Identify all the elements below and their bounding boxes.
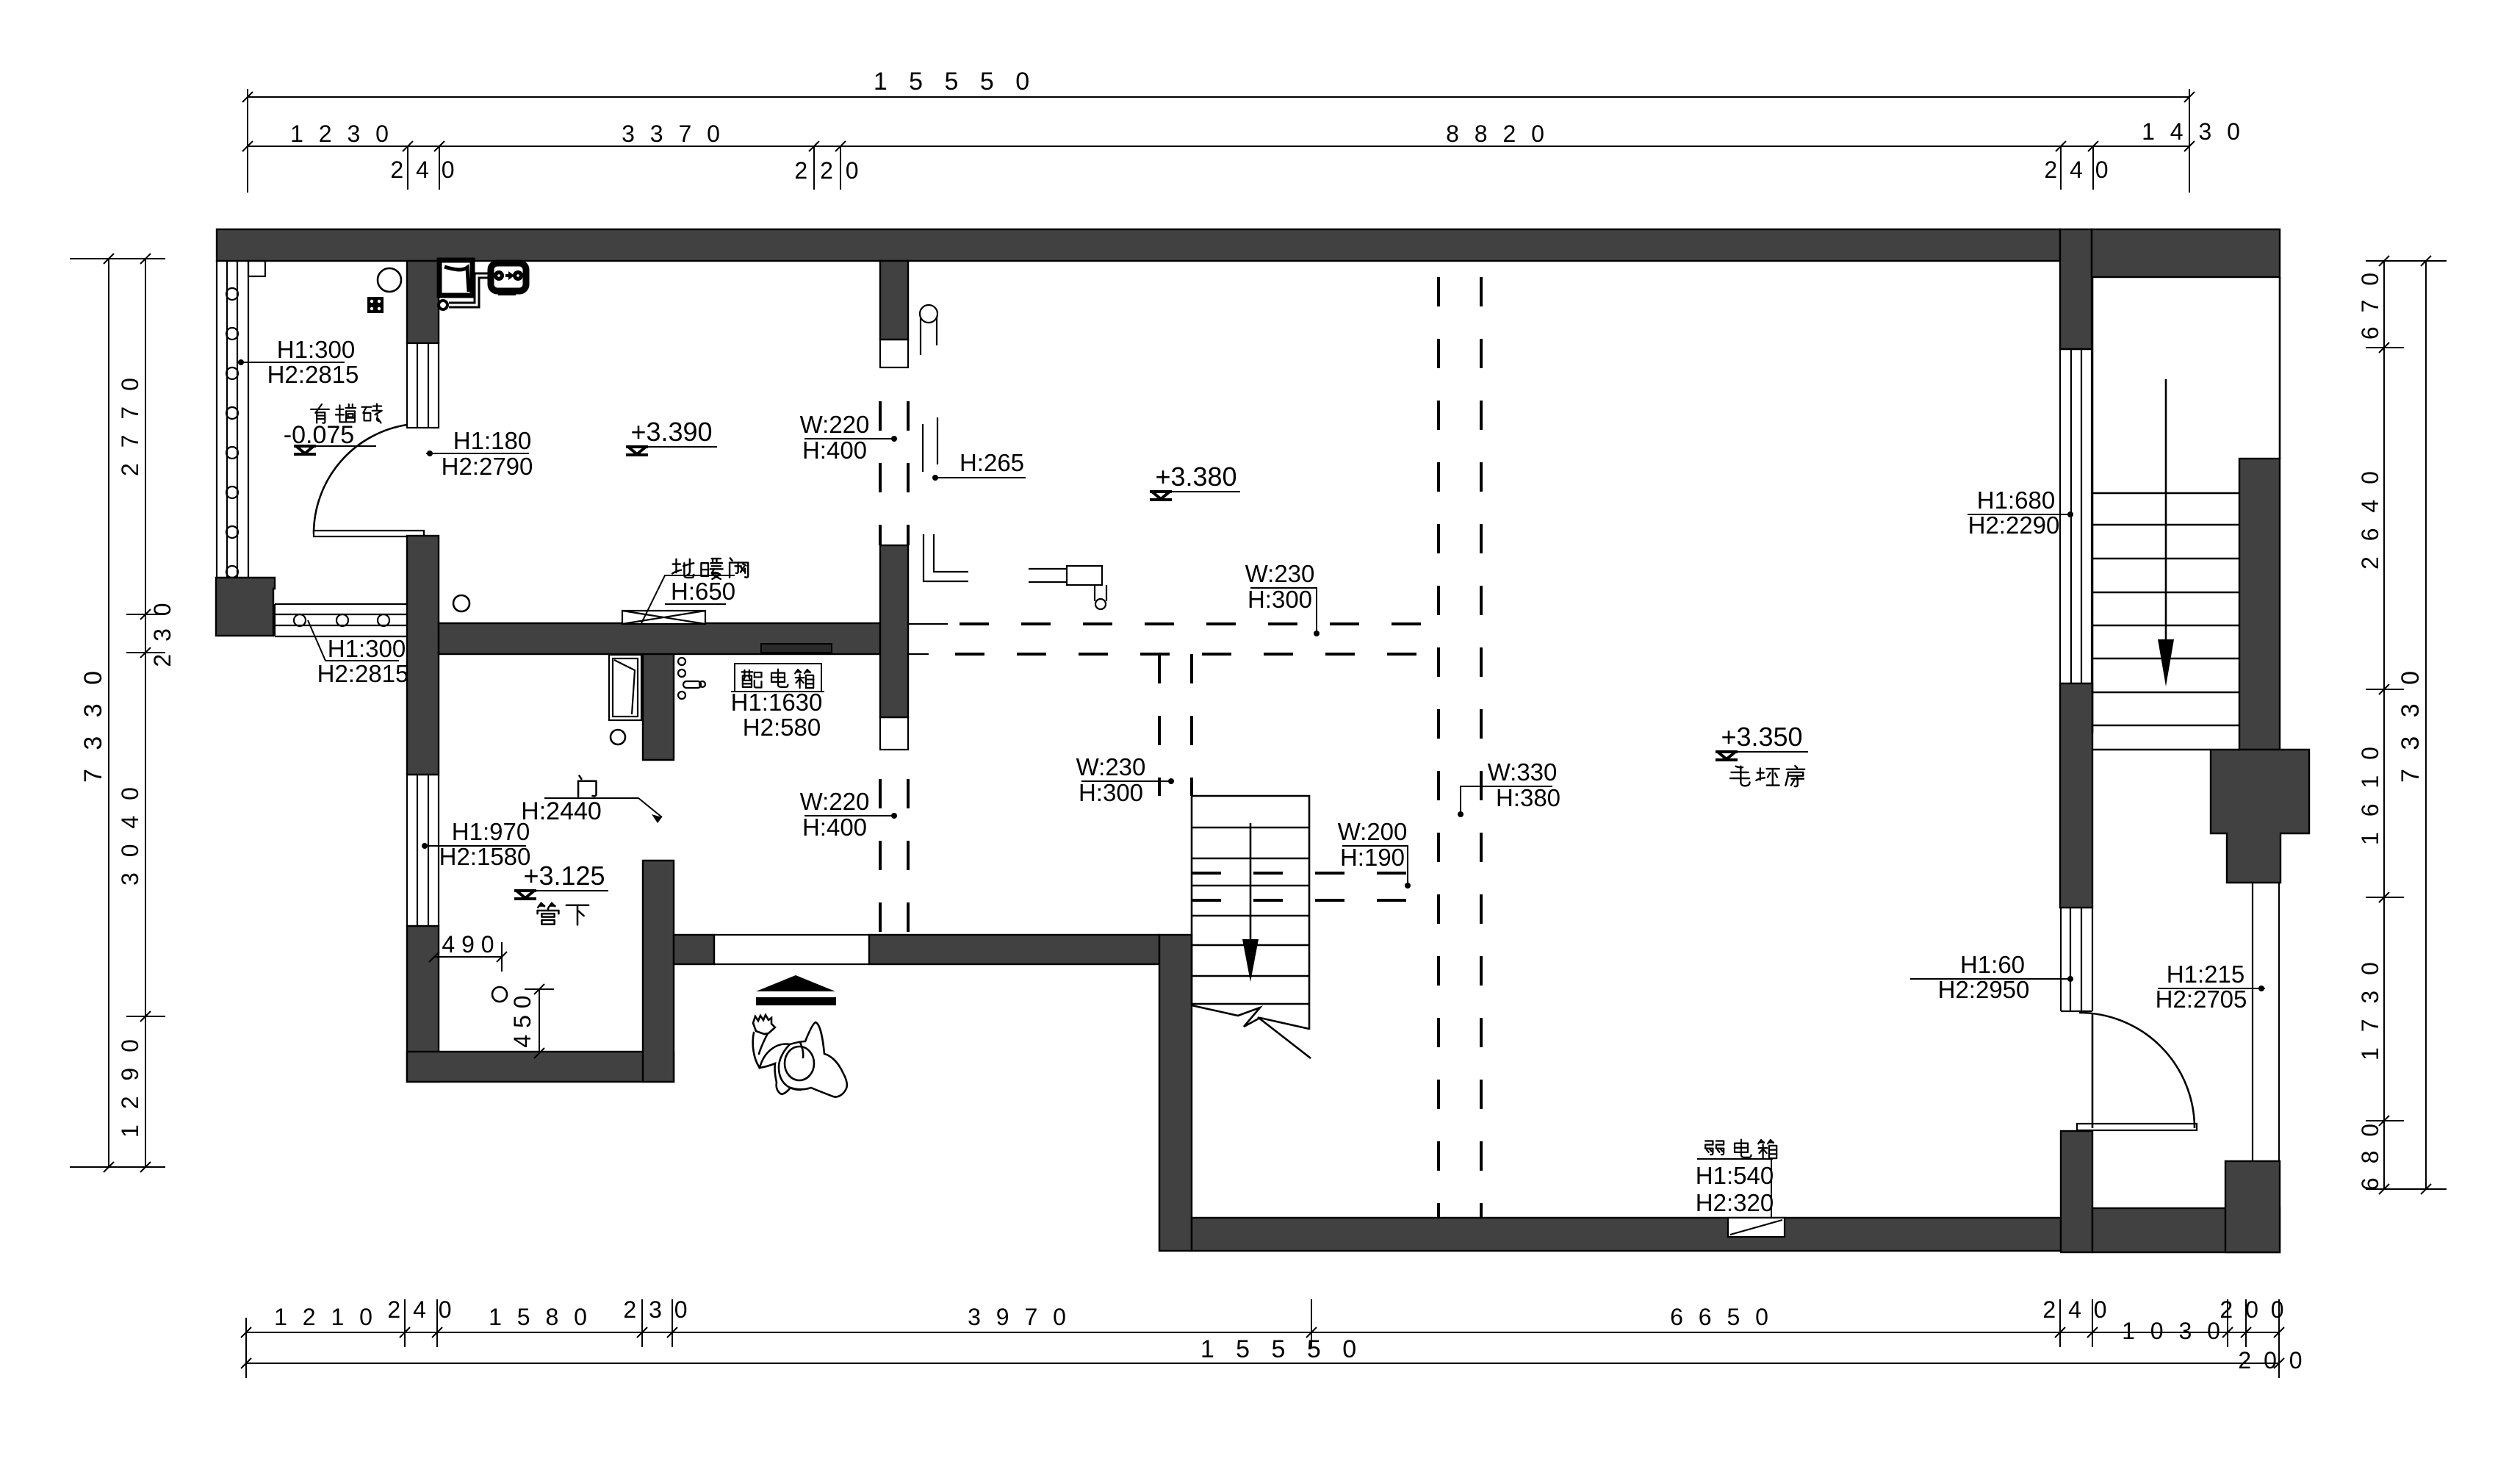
svg-text:H2:580: H2:580 <box>743 714 821 741</box>
svg-text:1 4 3 0: 1 4 3 0 <box>2142 118 2244 145</box>
svg-text:H1:970: H1:970 <box>452 818 530 845</box>
svg-text:2 4 0: 2 4 0 <box>2044 157 2111 183</box>
svg-text:6 7 0: 6 7 0 <box>2357 269 2383 340</box>
svg-text:H:300: H:300 <box>1248 586 1312 613</box>
svg-text:1 5 8 0: 1 5 8 0 <box>489 1304 591 1330</box>
svg-text:3 3 7 0: 3 3 7 0 <box>622 121 724 147</box>
svg-text:2 6 4 0: 2 6 4 0 <box>2357 467 2383 570</box>
svg-text:1 5 5 5 0: 1 5 5 5 0 <box>1200 1335 1364 1363</box>
svg-text:H2:2705: H2:2705 <box>2156 986 2247 1013</box>
svg-text:4 9 0: 4 9 0 <box>442 931 494 958</box>
svg-text:H1:60: H1:60 <box>1960 951 2025 978</box>
svg-text:2 3 0: 2 3 0 <box>149 600 176 667</box>
svg-text:H2:320: H2:320 <box>1696 1189 1774 1216</box>
svg-text:6 8 0: 6 8 0 <box>2357 1120 2383 1191</box>
svg-text:+3.380: +3.380 <box>1155 462 1236 492</box>
svg-text:W:200: W:200 <box>1338 818 1408 845</box>
svg-text:H2:2290: H2:2290 <box>1968 511 2060 539</box>
svg-text:2 3 0: 2 3 0 <box>623 1296 690 1323</box>
svg-text:2 4 0: 2 4 0 <box>387 1296 454 1323</box>
svg-text:1 7 3 0: 1 7 3 0 <box>2357 958 2383 1060</box>
svg-text:1 2 1 0: 1 2 1 0 <box>274 1304 377 1330</box>
svg-text:W:220: W:220 <box>800 411 870 438</box>
svg-text:H2:2815: H2:2815 <box>267 361 359 388</box>
svg-text:8 8 2 0: 8 8 2 0 <box>1446 121 1549 147</box>
svg-text:H:400: H:400 <box>802 814 867 841</box>
svg-text:H1:180: H1:180 <box>453 427 531 454</box>
svg-text:W:330: W:330 <box>1488 758 1558 786</box>
svg-text:H:400: H:400 <box>802 437 867 464</box>
svg-text:1 6 1 0: 1 6 1 0 <box>2357 742 2383 845</box>
svg-text:H:650: H:650 <box>671 578 735 605</box>
svg-text:1 5 5 5 0: 1 5 5 5 0 <box>874 68 1037 96</box>
svg-text:H2:2950: H2:2950 <box>1938 976 2030 1003</box>
svg-text:1 0 3 0: 1 0 3 0 <box>2122 1318 2225 1344</box>
svg-text:3 0 4 0: 3 0 4 0 <box>117 783 143 886</box>
svg-text:H1:680: H1:680 <box>1977 487 2055 514</box>
svg-text:H:2440: H:2440 <box>521 797 602 825</box>
svg-text:2 7 7 0: 2 7 7 0 <box>117 373 143 476</box>
svg-text:1 2 9 0: 1 2 9 0 <box>117 1035 143 1138</box>
svg-text:H:190: H:190 <box>1340 844 1405 871</box>
svg-text:H2:1580: H2:1580 <box>439 843 531 870</box>
svg-text:H1:300: H1:300 <box>328 635 406 662</box>
svg-text:3 9 7 0: 3 9 7 0 <box>968 1304 1070 1330</box>
svg-text:2 0 0: 2 0 0 <box>2220 1296 2286 1323</box>
svg-text:W:230: W:230 <box>1245 560 1315 587</box>
svg-text:7 3 3 0: 7 3 3 0 <box>79 665 107 783</box>
svg-text:+3.350: +3.350 <box>1721 722 1802 752</box>
svg-text:H:265: H:265 <box>960 449 1024 476</box>
svg-text:H1:1630: H1:1630 <box>731 689 823 716</box>
svg-text:2 4 0: 2 4 0 <box>390 157 457 183</box>
svg-text:W:230: W:230 <box>1076 753 1146 780</box>
svg-text:+3.390: +3.390 <box>630 417 712 447</box>
svg-text:2 2 0: 2 2 0 <box>794 157 861 184</box>
svg-text:2 4 0: 2 4 0 <box>2042 1296 2109 1323</box>
svg-text:H:300: H:300 <box>1079 779 1143 806</box>
svg-text:W:220: W:220 <box>800 788 870 815</box>
svg-text:4 5 0: 4 5 0 <box>509 995 536 1047</box>
svg-text:2 0 0: 2 0 0 <box>2238 1347 2305 1374</box>
svg-text:H2:2790: H2:2790 <box>442 453 533 480</box>
svg-text:-0.075: -0.075 <box>284 421 354 449</box>
svg-text:H2:2815: H2:2815 <box>317 660 409 687</box>
svg-text:H1:300: H1:300 <box>277 336 355 363</box>
svg-text:H1:215: H1:215 <box>2167 961 2244 988</box>
svg-text:H:380: H:380 <box>1496 784 1560 811</box>
svg-text:+3.125: +3.125 <box>523 861 605 891</box>
svg-text:7 3 3 0: 7 3 3 0 <box>2397 665 2424 783</box>
svg-text:H1:540: H1:540 <box>1696 1162 1774 1189</box>
svg-text:6 6 5 0: 6 6 5 0 <box>1670 1304 1773 1330</box>
svg-text:1 2 3 0: 1 2 3 0 <box>290 121 393 147</box>
